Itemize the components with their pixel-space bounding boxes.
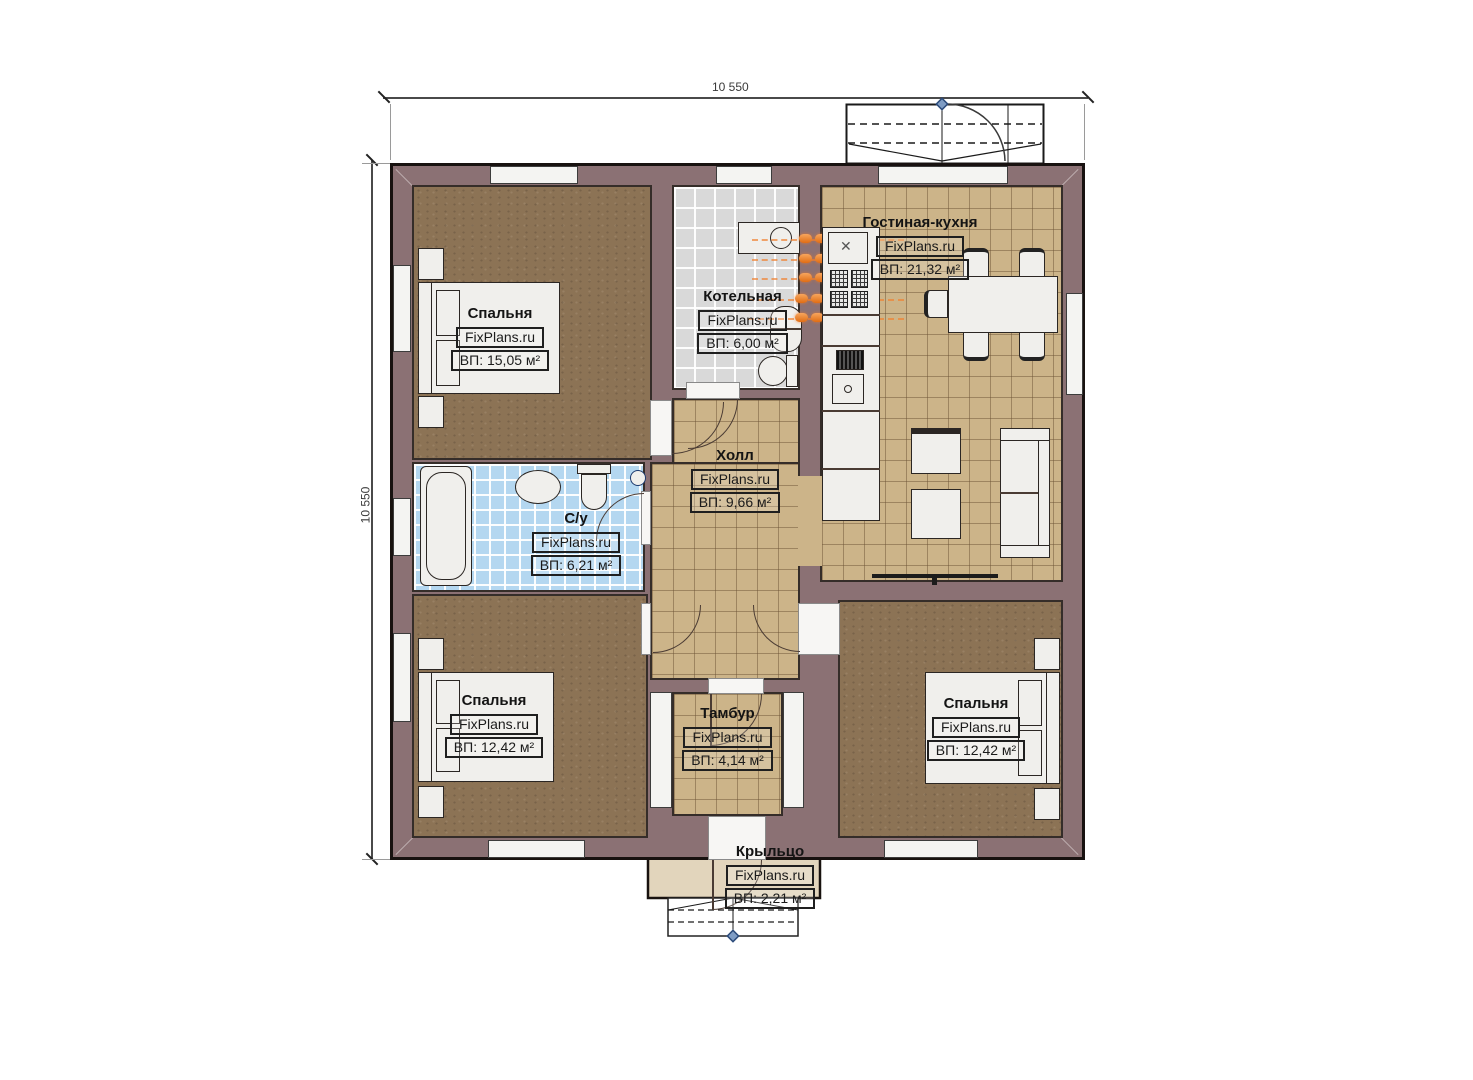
area-box: ВП: 15,05 м² xyxy=(451,350,549,371)
room-title: Тамбур xyxy=(700,705,754,722)
door-opening xyxy=(686,382,740,399)
room-title: Спальня xyxy=(462,692,527,709)
room-label-living-kitchen: Гостиная-кухня FixPlans.ru ВП: 21,32 м² xyxy=(855,214,985,280)
door-opening xyxy=(708,678,764,694)
toilet-boiler xyxy=(758,356,788,386)
bathroom-sink xyxy=(515,470,561,504)
terrace-steps xyxy=(845,103,1045,165)
washing-machine-door xyxy=(770,227,792,249)
chair xyxy=(963,331,989,361)
window xyxy=(393,633,411,722)
x-mark: ✕ xyxy=(840,238,852,255)
extension-line xyxy=(390,104,391,160)
burner xyxy=(830,270,848,288)
room-label-boiler: Котельная FixPlans.ru ВП: 6,00 м² xyxy=(685,288,800,354)
radiator xyxy=(799,254,812,263)
window xyxy=(393,498,411,556)
room-label-vestibule: Тамбур FixPlans.ru ВП: 4,14 м² xyxy=(672,705,783,771)
room-title: Котельная xyxy=(703,288,782,305)
watermark-box: FixPlans.ru xyxy=(876,236,964,257)
dining-table xyxy=(948,276,1058,333)
window xyxy=(884,840,978,858)
room-title: Гостиная-кухня xyxy=(863,214,978,231)
room-label-bedroom-tl: Спальня FixPlans.ru ВП: 15,05 м² xyxy=(432,305,568,371)
watermark-box: FixPlans.ru xyxy=(683,727,771,748)
radiator xyxy=(799,234,812,243)
toilet xyxy=(581,474,607,510)
dimension-label-left: 10 550 xyxy=(358,487,372,524)
window xyxy=(488,840,585,858)
room-title: Крыльцо xyxy=(736,843,804,860)
chair xyxy=(924,290,948,318)
watermark-box: FixPlans.ru xyxy=(532,532,620,553)
room-label-bathroom: С/у FixPlans.ru ВП: 6,21 м² xyxy=(522,510,630,576)
room-label-hall: Холл FixPlans.ru ВП: 9,66 м² xyxy=(680,447,790,513)
window xyxy=(1066,293,1083,395)
kitchen-sink-faucet xyxy=(844,385,852,393)
room-title: Холл xyxy=(716,447,754,464)
vestibule-niche xyxy=(783,692,804,808)
watermark-box: FixPlans.ru xyxy=(691,469,779,490)
area-box: ВП: 12,42 м² xyxy=(927,740,1025,761)
nightstand xyxy=(418,786,444,818)
toilet-tank xyxy=(577,464,611,474)
room-label-bedroom-br: Спальня FixPlans.ru ВП: 12,42 м² xyxy=(912,695,1040,761)
area-box: ВП: 6,00 м² xyxy=(697,333,788,354)
armchair xyxy=(911,428,961,474)
radiator xyxy=(799,273,812,282)
chair xyxy=(1019,248,1045,278)
area-box: ВП: 6,21 м² xyxy=(531,555,622,576)
window xyxy=(393,265,411,352)
window-terrace-door xyxy=(878,166,1008,184)
nightstand xyxy=(418,248,444,280)
room-label-bedroom-bl: Спальня FixPlans.ru ВП: 12,42 м² xyxy=(430,692,558,758)
counter-divider xyxy=(822,345,880,347)
watermark-box: FixPlans.ru xyxy=(698,310,786,331)
extension-line xyxy=(362,859,390,860)
floor-drain xyxy=(630,470,646,486)
nightstand xyxy=(418,638,444,670)
room-title: Спальня xyxy=(468,305,533,322)
nightstand xyxy=(1034,638,1060,670)
area-box: ВП: 21,32 м² xyxy=(871,259,969,280)
window xyxy=(716,166,772,184)
tv-stand xyxy=(932,578,937,585)
area-box: ВП: 4,14 м² xyxy=(682,750,773,771)
burner xyxy=(830,291,848,309)
extension-line xyxy=(1084,104,1085,160)
floor-plan-canvas: 10 550 10 550 xyxy=(0,0,1473,1080)
vestibule-niche xyxy=(650,692,672,808)
counter-divider xyxy=(822,410,880,412)
door-opening xyxy=(798,603,840,655)
door-opening xyxy=(641,603,651,655)
room-title: С/у xyxy=(564,510,587,527)
dimension-line-top xyxy=(383,97,1088,99)
door-leaf xyxy=(712,860,714,910)
watermark-box: FixPlans.ru xyxy=(726,865,814,886)
counter-divider xyxy=(822,468,880,470)
area-box: ВП: 9,66 м² xyxy=(690,492,781,513)
coffee-table xyxy=(911,489,961,539)
sofa-armrest xyxy=(1000,428,1050,441)
sofa-cushion-line xyxy=(1000,492,1038,494)
watermark-box: FixPlans.ru xyxy=(456,327,544,348)
toilet-boiler-tank xyxy=(786,355,798,387)
watermark-box: FixPlans.ru xyxy=(450,714,538,735)
room-label-porch: Крыльцо FixPlans.ru ВП: 2,21 м² xyxy=(715,843,825,909)
bathtub-inner xyxy=(426,472,466,580)
counter-divider xyxy=(822,314,880,316)
sofa-back xyxy=(1038,440,1050,546)
nightstand xyxy=(1034,788,1060,820)
dimension-label-top: 10 550 xyxy=(712,80,749,94)
chair xyxy=(1019,331,1045,361)
nightstand xyxy=(418,396,444,428)
bed-headboard xyxy=(418,282,432,394)
sofa-armrest xyxy=(1000,545,1050,558)
kitchen-grill xyxy=(836,350,864,370)
area-box: ВП: 2,21 м² xyxy=(725,888,816,909)
window xyxy=(490,166,578,184)
door-opening xyxy=(650,400,672,456)
extension-line xyxy=(362,163,390,164)
area-box: ВП: 12,42 м² xyxy=(445,737,543,758)
watermark-box: FixPlans.ru xyxy=(932,717,1020,738)
burner xyxy=(851,291,869,309)
bed-headboard xyxy=(1046,672,1060,784)
room-title: Спальня xyxy=(944,695,1009,712)
passage-opening xyxy=(798,476,822,566)
